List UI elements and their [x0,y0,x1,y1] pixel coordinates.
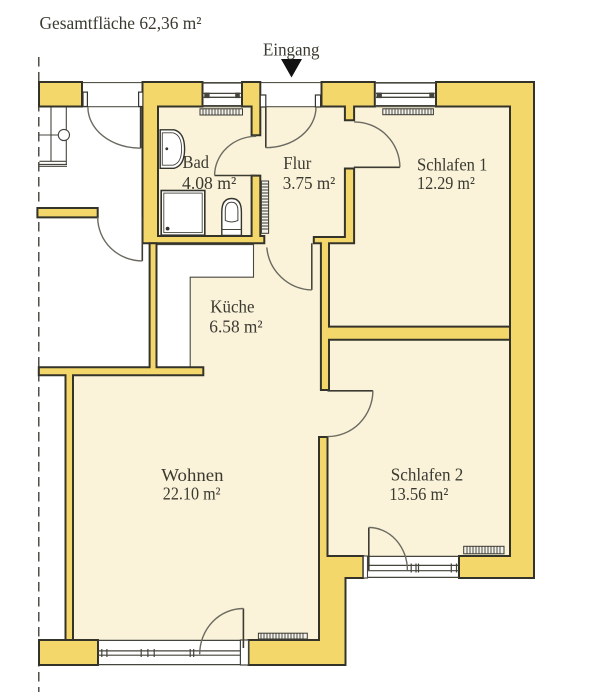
svg-text:Bad: Bad [183,152,210,172]
svg-text:Wohnen: Wohnen [161,465,223,485]
svg-text:Schlafen 1: Schlafen 1 [417,154,487,174]
svg-text:4.08 m²: 4.08 m² [182,173,236,193]
svg-text:3.75 m²: 3.75 m² [283,173,336,193]
svg-text:Flur: Flur [283,153,311,173]
svg-text:13.56 m²: 13.56 m² [389,484,448,504]
svg-text:Schlafen 2: Schlafen 2 [391,464,464,484]
svg-text:6.58 m²: 6.58 m² [209,317,262,337]
svg-text:Küche: Küche [210,296,254,316]
svg-text:Eingang: Eingang [263,40,320,60]
svg-text:22.10 m²: 22.10 m² [163,484,221,504]
svg-text:12.29 m²: 12.29 m² [417,173,475,193]
svg-text:Gesamtfläche 62,36 m²: Gesamtfläche 62,36 m² [40,13,202,33]
